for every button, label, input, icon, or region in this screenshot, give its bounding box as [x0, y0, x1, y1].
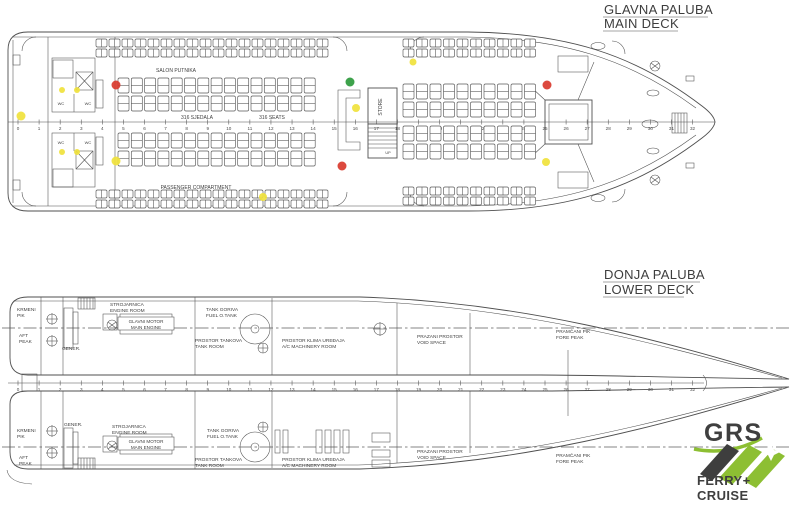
yellow-marker-dot [542, 158, 550, 166]
frame-number: 23 [500, 387, 506, 392]
void-space-en-bot: VOID SPACE [417, 455, 446, 461]
stern-bitt [13, 55, 20, 65]
frame-number: 11 [247, 126, 252, 131]
frame-number: 0 [17, 126, 20, 131]
main-engine-en-bot: MAIN ENGINE [131, 445, 161, 450]
frame-number: 0 [17, 387, 20, 392]
fuel-tank-hr-top: TANK GORIVA [206, 307, 239, 313]
red-marker-dot [338, 162, 347, 171]
aft-peak-hr-2-bot: PIK [17, 434, 26, 440]
engine-room-en-top: ENGINE ROOM [110, 308, 145, 314]
wc-label-2: WC [85, 101, 92, 106]
main-engine-en-top: MAIN ENGINE [131, 325, 161, 330]
ac-room-hr-bot: PROSTOR KLIMA UREĐAJA [282, 457, 346, 463]
aft-peak-en-1-bot: AFT [19, 455, 28, 461]
logo-ferry-text: FERRY+ [697, 473, 751, 488]
logo-grs-text: GRS [704, 419, 763, 447]
fore-peak-hr-bot: PRAMČANI PIK [556, 452, 591, 459]
void-space-hr-bot: PRAZANI PROSTOR [417, 449, 463, 455]
yellow-marker-dot [17, 112, 26, 121]
frame-number: 4 [101, 126, 104, 131]
frame-number: 6 [143, 126, 146, 131]
stern-bitt [13, 180, 20, 190]
frame-number: 32 [690, 387, 696, 392]
frame-number: 29 [627, 387, 633, 392]
frame-number: 8 [185, 387, 188, 392]
seats-count-hr: 316 SJEDALA [181, 115, 214, 121]
frame-number: 10 [226, 126, 232, 131]
green-marker-dot [346, 78, 355, 87]
up-label: UP [385, 151, 391, 155]
passenger-compartment-label: PASSENGER COMPARTMENT [161, 185, 232, 191]
frame-number: 14 [311, 126, 317, 131]
frame-number: 25 [542, 126, 548, 131]
frame-number: 15 [332, 387, 338, 392]
deck-plan-svg: 0123456789101112131415161718192021222324… [0, 0, 800, 506]
frame-number: 3 [80, 387, 83, 392]
frame-number: 18 [395, 126, 401, 131]
frame-number: 6 [143, 387, 146, 392]
seats-count-en: 316 SEATS [259, 115, 285, 121]
frame-number: 20 [437, 387, 443, 392]
frame-number: 30 [648, 126, 654, 131]
frame-number: 7 [164, 387, 167, 392]
frame-number: 1 [38, 126, 41, 131]
engine-room-hr-bot: STROJARNICA [112, 424, 147, 430]
void-space-hr-top: PRAZANI PROSTOR [417, 334, 463, 340]
void-space-en-top: VOID SPACE [417, 340, 446, 346]
frame-number: 13 [289, 126, 295, 131]
frame-number: 10 [226, 387, 232, 392]
main-deck-title-hr: GLAVNA PALUBA [604, 2, 713, 17]
tank-room-hr-top: PROSTOR TANKOVA [195, 338, 243, 344]
frame-zero-box [22, 374, 37, 391]
wc-label-1: WC [58, 101, 65, 106]
frame-number: 25 [542, 387, 548, 392]
fuel-tank-en-top: FUEL O.TANK [206, 313, 238, 319]
frame-number: 31 [669, 387, 675, 392]
frame-number: 27 [585, 126, 591, 131]
grs-ferry-cruise-logo: GRS FERRY+ CRUISE [694, 419, 785, 503]
ac-box [372, 433, 390, 442]
frame-number: 24 [521, 387, 527, 392]
generator-label-top: GENER. [62, 346, 80, 352]
fore-peak-hr-top: PRAMČANI PIK [556, 328, 591, 335]
engine-room-en-bot: ENGINE ROOM [112, 430, 147, 436]
frame-number: 19 [416, 387, 422, 392]
ac-unit [325, 430, 331, 453]
frame-number: 16 [353, 387, 359, 392]
frame-number: 31 [669, 126, 675, 131]
main-engine-hr-top: GLAVNI MOTOR [129, 319, 164, 324]
tank-room-hr-bot: PROSTOR TANKOVA [195, 457, 243, 463]
frame-number: 8 [185, 126, 188, 131]
frame-number: 1 [38, 387, 41, 392]
salon-putnika-label: SALON PUTNIKA [156, 68, 197, 74]
door-arc [333, 192, 347, 206]
frame-number: 26 [564, 126, 570, 131]
frame-number: 21 [458, 387, 464, 392]
bar-counter [338, 90, 360, 150]
frame-number: 28 [606, 126, 612, 131]
main-deck-title-en: MAIN DECK [604, 16, 679, 31]
yellow-marker-dot [259, 193, 267, 201]
frame-number: 30 [648, 387, 654, 392]
frame-number: 17 [374, 387, 380, 392]
frame-number: 17 [374, 126, 380, 131]
frame-number: 7 [164, 126, 167, 131]
generator [64, 428, 73, 468]
yellow-marker-dot [112, 157, 121, 166]
red-marker-dot [543, 81, 552, 90]
main-deck-frame-ruler: 0123456789101112131415161718192021222324… [8, 120, 715, 132]
main-deck-hull-outline [8, 32, 715, 211]
fore-peak-en-bot: FORE PEAK [556, 459, 584, 465]
aft-peak-en-2-bot: PEAK [19, 461, 33, 467]
stairs [78, 458, 95, 469]
staircase [368, 124, 397, 158]
ac-unit [343, 430, 349, 453]
yellow-marker-dot [59, 149, 65, 155]
frame-number: 29 [627, 126, 633, 131]
lower-deck-title-hr: DONJA PALUBA [604, 267, 705, 282]
aft-peak-hr-2-top: PIK [17, 313, 26, 319]
main-engine-hr-bot: GLAVNI MOTOR [129, 439, 164, 444]
frame-number: 9 [206, 387, 209, 392]
tank-room-en-bot: TANK ROOM [195, 463, 224, 469]
ship-deck-plan-drawing: 0123456789101112131415161718192021222324… [0, 0, 800, 506]
frame-number: 9 [206, 126, 209, 131]
yellow-marker-dot [74, 87, 80, 93]
store-label: STORE [378, 98, 384, 116]
frame-number: 5 [122, 387, 125, 392]
fuel-tank-en-bot: FUEL O.TANK [207, 434, 239, 440]
frame-number: 15 [332, 126, 338, 131]
windlass [672, 113, 687, 133]
aft-peak-en-1-top: AFT [19, 333, 28, 339]
ac-unit [283, 430, 288, 453]
frame-number: 12 [268, 126, 274, 131]
fuel-tank-hr-bot: TANK GORIVA [207, 428, 240, 434]
door-arc [333, 37, 347, 51]
red-marker-dot [112, 81, 121, 90]
frame-number: 11 [247, 387, 252, 392]
yellow-marker-dot [410, 59, 417, 66]
tank-room-en-top: TANK ROOM [195, 344, 224, 350]
ac-unit [316, 430, 322, 453]
engine-aux [103, 314, 117, 330]
aft-peak-hr-1-bot: KRMENI [17, 428, 36, 434]
frame-number: 16 [353, 126, 359, 131]
frame-number: 32 [690, 126, 696, 131]
main-deck-plan: 0123456789101112131415161718192021222324… [8, 2, 715, 211]
frame-number: 28 [606, 387, 612, 392]
ac-room-hr-top: PROSTOR KLIMA UREĐAJA [282, 338, 346, 344]
ac-room-en-bot: A/C MACHINERY ROOM [282, 463, 336, 469]
stern-door-arc [22, 37, 36, 51]
stern-shell-curve [7, 470, 32, 484]
generator-label-bot: GENER. [64, 422, 82, 428]
door-arc [612, 41, 625, 54]
frame-number: 3 [80, 126, 83, 131]
yellow-marker-dot [59, 87, 65, 93]
ac-room-en-top: A/C MACHINERY ROOM [282, 344, 336, 350]
frame-number: 26 [564, 387, 570, 392]
frame-number: 12 [268, 387, 274, 392]
main-deck-seats [96, 39, 536, 208]
frame-number: 4 [101, 387, 104, 392]
lower-deck-plan: 0123456789101112131415161718192021222324… [2, 267, 792, 484]
stairs [78, 298, 95, 309]
frame-number: 14 [311, 387, 317, 392]
fore-peak-en-top: FORE PEAK [556, 335, 584, 341]
wc-label-3: WC [58, 140, 65, 145]
yellow-marker-dot [352, 104, 360, 112]
wc-label-4: WC [85, 140, 92, 145]
logo-cruise-text: CRUISE [697, 488, 749, 503]
engine-room-hr-top: STROJARNICA [110, 302, 145, 308]
ac-box [372, 450, 390, 457]
door-arc [612, 189, 625, 202]
aft-peak-hr-1-top: KRMENI [17, 307, 36, 313]
aft-peak-en-2-top: PEAK [19, 339, 33, 345]
frame-number: 2 [59, 126, 62, 131]
ac-unit [275, 430, 280, 453]
stern-door-arc [22, 192, 36, 206]
frame-number: 5 [122, 126, 125, 131]
ac-unit [334, 430, 340, 453]
frame-number: 22 [479, 387, 485, 392]
lower-deck-title-en: LOWER DECK [604, 282, 694, 297]
frame-number: 27 [585, 387, 591, 392]
yellow-marker-dot [74, 149, 80, 155]
frame-number: 2 [59, 387, 62, 392]
frame-number: 18 [395, 387, 401, 392]
fuel-tank-manhole [240, 314, 270, 344]
frame-number: 13 [289, 387, 295, 392]
